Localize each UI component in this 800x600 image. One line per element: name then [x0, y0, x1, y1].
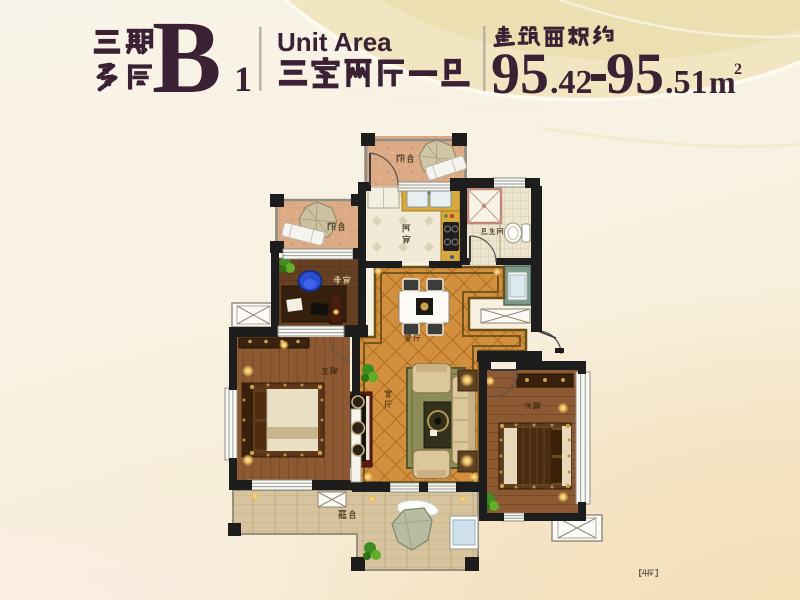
svg-text:95: 95	[606, 41, 664, 106]
svg-text:2: 2	[734, 61, 742, 78]
svg-text:m: m	[709, 64, 736, 100]
svg-text:95: 95	[491, 41, 549, 106]
svg-text:Unit Area: Unit Area	[277, 27, 392, 57]
svg-text:.51: .51	[665, 64, 708, 101]
svg-text:B: B	[152, 0, 221, 115]
svg-text:.42: .42	[550, 64, 593, 101]
svg-text:1: 1	[234, 59, 252, 99]
